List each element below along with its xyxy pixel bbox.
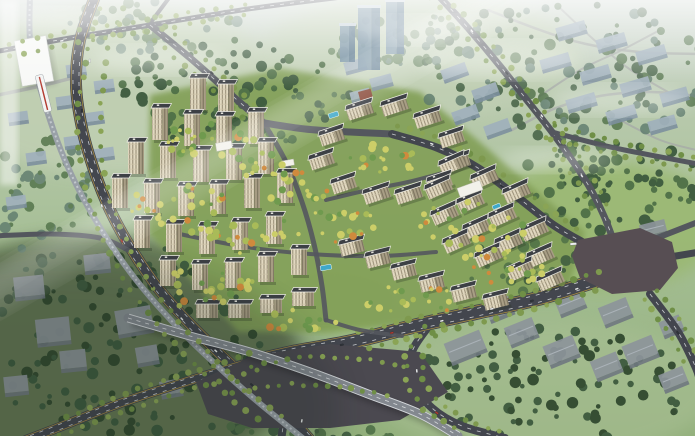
rendering-canvas [0, 0, 695, 436]
aerial-rendering [0, 0, 695, 436]
